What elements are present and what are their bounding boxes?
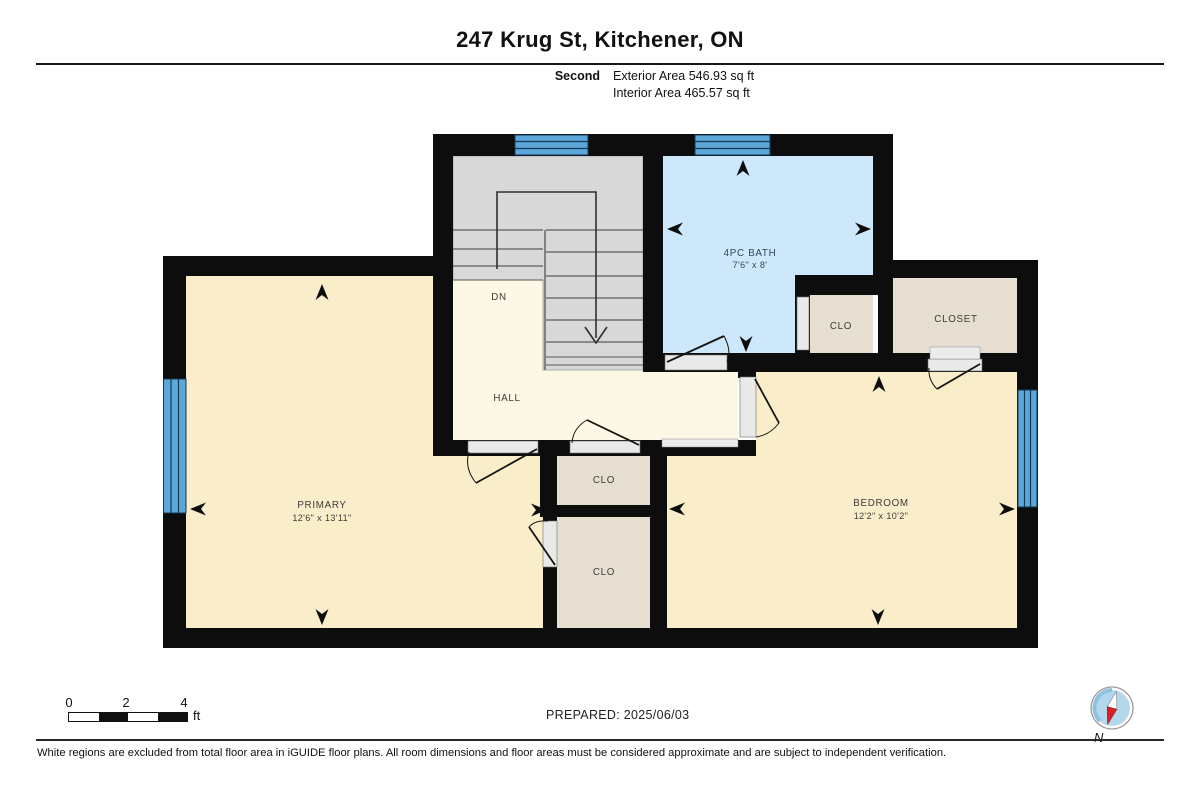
clo-primary-door-opening xyxy=(543,521,557,567)
scale-bar xyxy=(68,712,188,722)
bedroom-label: BEDROOM xyxy=(853,498,909,509)
stair-window xyxy=(515,135,588,155)
clo-hall-label: CLO xyxy=(593,475,615,486)
room-fills xyxy=(186,156,1018,628)
wall-closet-top xyxy=(878,260,1038,278)
scale-tick-0: 0 xyxy=(62,695,76,710)
hall-label: HALL xyxy=(493,393,520,404)
wall-clo-mid xyxy=(540,505,667,517)
wall-clo-hall-west xyxy=(540,456,557,505)
compass-rose: N xyxy=(1082,684,1146,756)
wall-primary-east xyxy=(433,276,453,456)
clo-bath-label: CLO xyxy=(830,321,852,332)
bath-dims: 7'6" x 8' xyxy=(733,260,768,270)
wall-clo-bath-top xyxy=(795,275,878,295)
bath-window xyxy=(695,135,770,155)
hall-bedroom-recess xyxy=(662,439,738,447)
wall-stair-east xyxy=(643,134,663,372)
bath-door-opening xyxy=(665,355,727,370)
bath-label: 4PC BATH xyxy=(724,248,777,259)
bedroom-dims: 12'2" x 10'2" xyxy=(854,511,909,521)
scale-tick-2: 2 xyxy=(119,695,133,710)
prepared-date: PREPARED: 2025/06/03 xyxy=(546,708,689,722)
footer-divider xyxy=(36,739,1164,741)
scale-segment xyxy=(158,713,188,721)
clo-primary-label: CLO xyxy=(593,567,615,578)
stairs-dn-label: DN xyxy=(491,292,507,303)
clo-bath-opening xyxy=(797,297,809,350)
primary-door-opening xyxy=(468,441,538,453)
floorplan-page: { "header": { "title": "247 Krug St, Kit… xyxy=(0,0,1200,805)
scale-segment xyxy=(128,713,158,721)
compass-north-label: N xyxy=(1094,730,1104,745)
floor-plan: PRIMARY 12'6" x 13'11" BEDROOM 12'2" x 1… xyxy=(0,0,1200,805)
wall-stair-west xyxy=(433,134,453,276)
primary-label: PRIMARY xyxy=(297,500,346,511)
closet-door-recess xyxy=(930,347,980,359)
primary-dims: 12'6" x 13'11" xyxy=(292,513,351,523)
wall-clo-east xyxy=(650,456,667,628)
bedroom-window xyxy=(1018,390,1037,507)
scale-tick-4: 4 xyxy=(177,695,191,710)
scale-unit: ft xyxy=(193,708,200,723)
wall-bottom xyxy=(163,628,1038,648)
disclaimer-text: White regions are excluded from total fl… xyxy=(37,747,1177,759)
closet-label: CLOSET xyxy=(934,314,977,325)
bedroom-door-opening xyxy=(740,377,756,437)
wall-primary-top xyxy=(163,256,453,276)
closet-door-opening xyxy=(928,359,982,371)
clo-hall-door-opening xyxy=(570,441,640,453)
scale-segment xyxy=(99,713,129,721)
primary-window xyxy=(164,379,187,513)
scale-segment xyxy=(69,713,99,721)
